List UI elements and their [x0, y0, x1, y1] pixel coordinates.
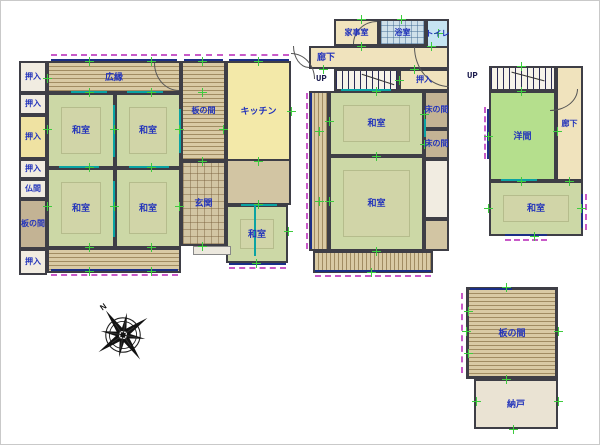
- fusuma-line: [113, 105, 115, 157]
- room-label: 押入: [416, 76, 432, 84]
- room-tokonoma-2: 床の間: [424, 129, 449, 159]
- room-label: 納戸: [507, 400, 525, 409]
- room-label: 板の間: [21, 220, 45, 228]
- shoji-dash-line: [184, 54, 223, 56]
- room-label: 押入: [25, 133, 41, 141]
- stairs-up-label-right: UP: [467, 71, 478, 81]
- room-label: 押入: [25, 73, 41, 81]
- room-label: 家事室: [345, 29, 369, 37]
- window-line: [315, 270, 431, 272]
- floor-plan-canvas: 押入 押入 押入 押入 仏間 板の間 押入 広縁 和室 和室 和室 和室 板の間…: [0, 0, 600, 445]
- fusuma-line: [179, 109, 181, 153]
- room-veranda-left-mid: [309, 91, 329, 251]
- compass-north-label: N: [98, 302, 108, 313]
- shoji-dash-line: [51, 274, 178, 276]
- room-genkan: 玄関: [181, 161, 226, 246]
- fusuma-line: [127, 91, 163, 93]
- fusuma-line: [341, 89, 391, 91]
- room-label: 仏間: [25, 185, 41, 193]
- room-closet-5: 押入: [19, 249, 47, 275]
- fusuma-line: [113, 181, 115, 237]
- fusuma-line: [241, 204, 277, 206]
- window-line: [581, 194, 583, 228]
- room-washitsu-2: 和室: [115, 93, 181, 168]
- room-tokonoma-1: 床の間: [424, 91, 449, 129]
- room-label: 洋間: [513, 132, 531, 141]
- fusuma-line: [501, 179, 537, 181]
- window-line: [51, 59, 177, 61]
- shoji-dash-line: [229, 54, 289, 56]
- room-washitsu-7: 和室: [329, 156, 424, 251]
- room-label: 押入: [25, 165, 41, 173]
- shoji-dash-line: [585, 194, 587, 230]
- fusuma-line: [71, 91, 107, 93]
- room-service: [226, 159, 291, 205]
- room-itanoma-strip: 板の間: [181, 61, 226, 161]
- window-line: [229, 59, 289, 61]
- window-line: [487, 109, 489, 159]
- room-label: 板の間: [498, 329, 525, 338]
- room-label: 廊下: [562, 120, 578, 128]
- room-label: トイレ: [426, 30, 450, 38]
- room-label: 床の間: [425, 106, 449, 114]
- compass-rose: N: [85, 297, 161, 373]
- room-washitsu-8: 和室: [489, 181, 583, 236]
- shoji-dash-line: [306, 93, 308, 249]
- room-washitsu-6: 和室: [329, 91, 424, 156]
- room-bath: 浴室: [379, 19, 426, 46]
- shoji-dash-line: [484, 107, 486, 159]
- window-line: [505, 234, 547, 236]
- room-closet-4: 押入: [19, 159, 47, 179]
- room-label: 広縁: [105, 73, 123, 82]
- window-line: [470, 288, 512, 290]
- room-label: 浴室: [395, 29, 411, 37]
- shoji-dash-line: [229, 267, 286, 269]
- stairs-mid: [334, 69, 399, 91]
- window-line: [51, 269, 178, 271]
- room-closet-1: 押入: [19, 61, 47, 93]
- room-washitsu-5: 和室: [226, 205, 288, 263]
- room-label: 押入: [25, 100, 41, 108]
- room-label: 和室: [139, 126, 157, 135]
- room-butsuma: 仏間: [19, 179, 47, 199]
- room-label: 和室: [248, 230, 266, 239]
- room-label: 和室: [527, 204, 545, 213]
- room-label: 和室: [72, 126, 90, 135]
- shoji-dash-line: [505, 239, 547, 241]
- window-line: [310, 93, 312, 249]
- window-line: [184, 59, 223, 61]
- shoji-dash-line: [51, 54, 177, 56]
- room-itanoma-left: 板の間: [19, 199, 47, 249]
- fusuma-line: [59, 166, 99, 168]
- room-washitsu-3: 和室: [47, 168, 115, 248]
- room-alcove-1: [424, 159, 449, 219]
- room-nando: 納戸: [474, 379, 558, 429]
- room-label: 和室: [72, 204, 90, 213]
- room-label: キッチン: [240, 107, 276, 116]
- room-corridor-right: 廊下: [556, 66, 583, 181]
- room-label: 和室: [139, 204, 157, 213]
- room-label: 玄関: [194, 199, 212, 208]
- room-closet-2: 押入: [19, 93, 47, 115]
- entrance-step: [193, 246, 231, 255]
- room-label: 床の間: [425, 140, 449, 148]
- fusuma-line: [129, 166, 169, 168]
- room-washitsu-1: 和室: [47, 93, 115, 168]
- fusuma-line: [424, 119, 426, 137]
- room-youma: 洋間: [489, 91, 556, 181]
- room-kitchen: キッチン: [226, 61, 291, 161]
- room-washitsu-4: 和室: [115, 168, 181, 248]
- shoji-dash-line: [315, 275, 431, 277]
- room-label: 廊下: [317, 53, 335, 62]
- room-label: 押入: [25, 258, 41, 266]
- room-label: 和室: [367, 199, 385, 208]
- room-toilet: トイレ: [426, 19, 449, 48]
- window-line: [229, 263, 286, 265]
- room-closet-3: 押入: [19, 115, 47, 159]
- shoji-dash-line: [461, 293, 463, 373]
- room-label: 和室: [367, 119, 385, 128]
- room-label: 板の間: [192, 107, 216, 115]
- stairs-up-label-mid: UP: [316, 74, 327, 84]
- stairs-right: [489, 66, 556, 91]
- room-alcove-2: [424, 219, 449, 251]
- room-itanoma-annex: 板の間: [466, 287, 558, 379]
